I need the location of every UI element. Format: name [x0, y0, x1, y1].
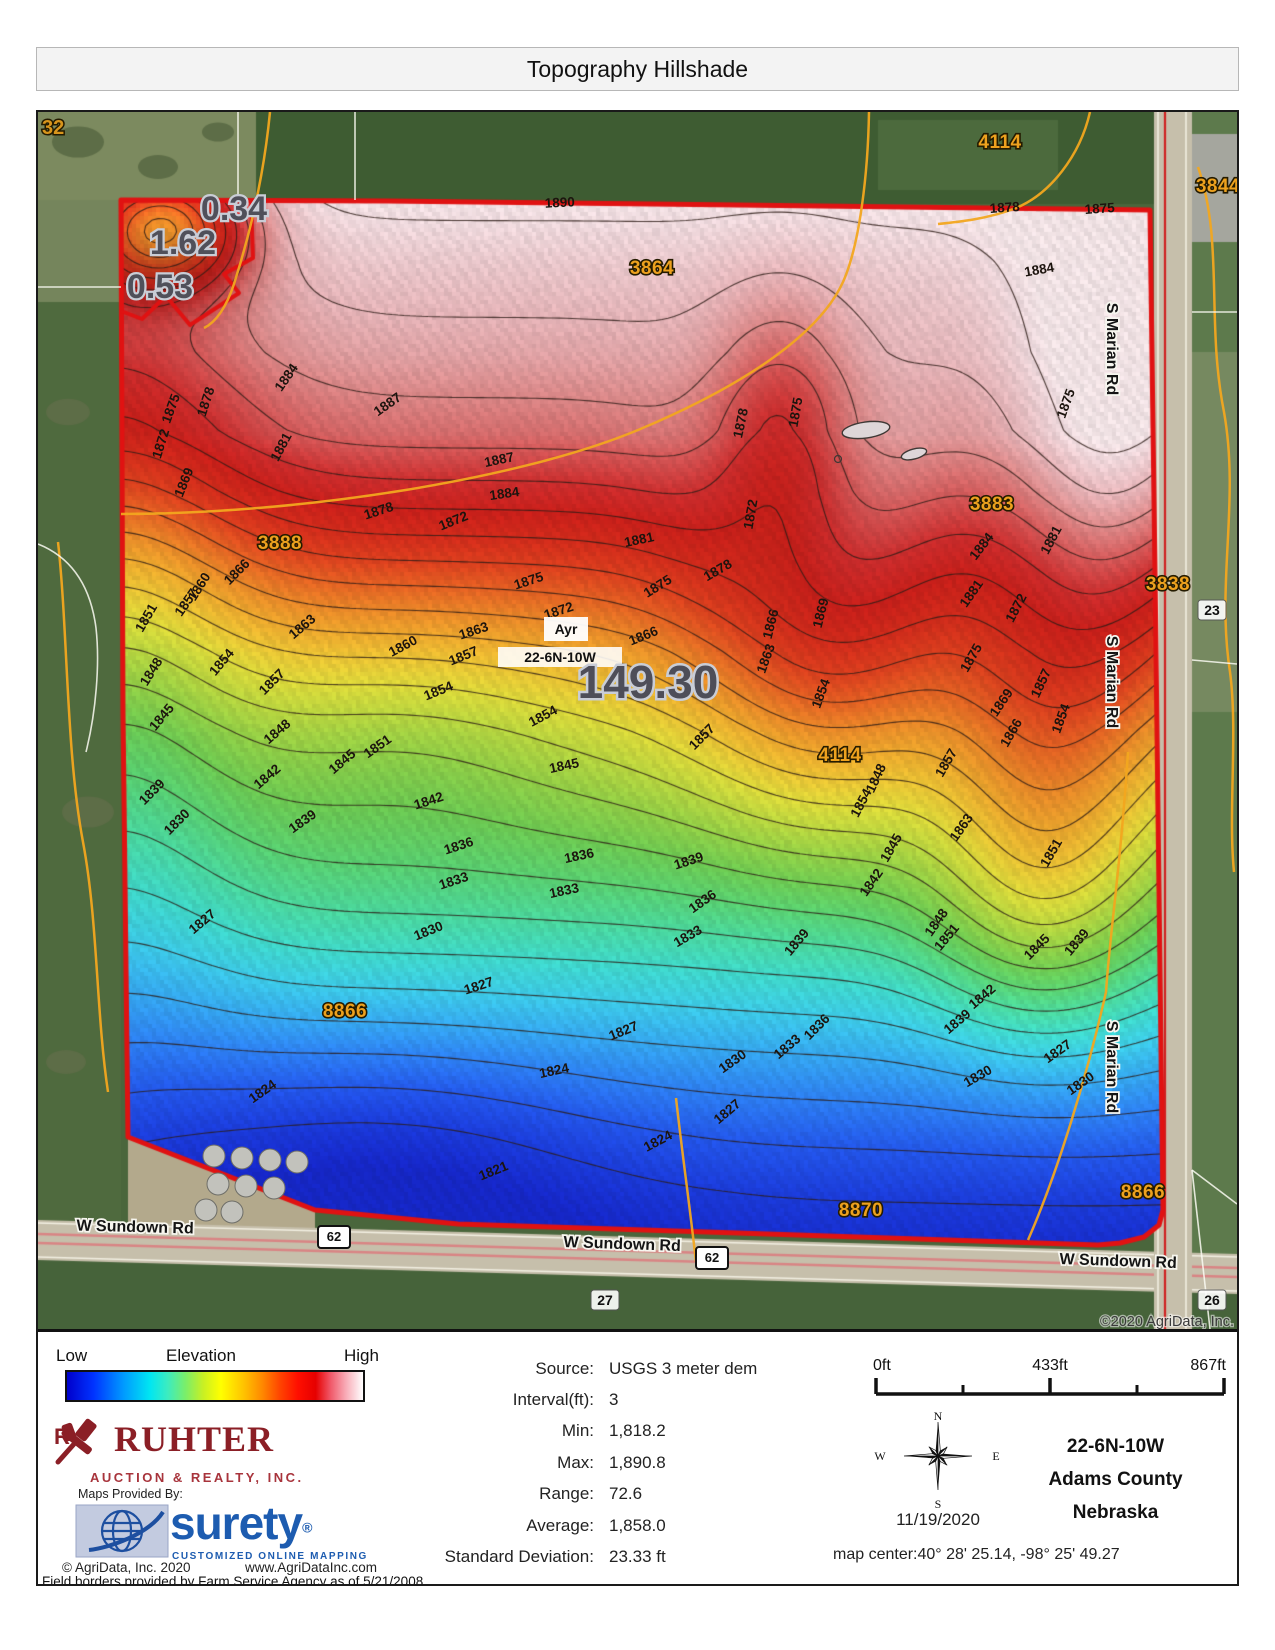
road-label: W Sundown Rd	[1059, 1251, 1177, 1272]
contour-label: 1824	[246, 1076, 280, 1106]
field-borders-note: Field borders provided by Farm Service A…	[42, 1574, 427, 1584]
contour-label: 1839	[286, 807, 319, 837]
contour-label: 1836	[801, 1011, 833, 1043]
contour-label: 1854	[526, 702, 560, 730]
surety-logo-text: surety®	[170, 1500, 312, 1546]
scale-bar: 0ft 433ft 867ft	[833, 1348, 1237, 1400]
acreage-label: 0.53	[127, 268, 193, 306]
grain-bin	[286, 1151, 308, 1173]
location-trs: 22-6N-10W	[1023, 1436, 1208, 1458]
contour-label: 1869	[987, 686, 1016, 719]
stat-row: Source:USGS 3 meter dem	[338, 1353, 808, 1384]
stat-row: Range:72.6	[338, 1479, 808, 1510]
contour-label: 1881	[957, 576, 987, 610]
contour-label: 1857	[256, 666, 288, 698]
report-box: 1890188718871884188418841884188118811881…	[36, 110, 1239, 1586]
contour-label: 1854	[422, 678, 456, 703]
contour-label: 1863	[754, 641, 779, 675]
contour-label: 1872	[741, 498, 761, 530]
grain-bin	[195, 1199, 217, 1221]
parcel-label: 8866	[1121, 1182, 1165, 1203]
road-label: W Sundown Rd	[563, 1234, 681, 1255]
contour-label: 1830	[716, 1047, 749, 1077]
stat-value: 1,818.2	[609, 1421, 666, 1441]
legend-title: Elevation	[166, 1346, 236, 1366]
surety-globe-icon	[75, 1504, 169, 1558]
topo-map: 1890188718871884188418841884188118811881…	[38, 112, 1237, 1332]
parcel-label: 3838	[1146, 574, 1190, 595]
svg-text:R: R	[54, 1424, 70, 1449]
stat-value: USGS 3 meter dem	[609, 1359, 757, 1379]
grain-bin	[231, 1147, 253, 1169]
contour-label: 1875	[957, 641, 985, 675]
contour-label: 1854	[809, 676, 834, 710]
contour-label: 1830	[961, 1062, 995, 1090]
contour-label: 1881	[267, 430, 295, 464]
contour-label: 1863	[286, 611, 319, 642]
field-border-line	[38, 544, 98, 752]
contour-label: 1845	[146, 700, 177, 733]
section-number: 27	[597, 1292, 613, 1308]
contour-label: 1866	[221, 556, 253, 588]
contour-label: 1821	[477, 1158, 511, 1183]
stat-value: 1,858.0	[609, 1516, 666, 1536]
contour-label: 1872	[149, 427, 172, 460]
contour-label: 1833	[671, 922, 705, 950]
contour-label: 1869	[171, 466, 196, 499]
contour-label: 1839	[781, 926, 812, 959]
grain-bin	[235, 1175, 257, 1197]
pond	[835, 456, 842, 463]
report-footer: Low Elevation High R RUHTER AUCTION & RE…	[38, 1332, 1237, 1584]
contour-label: 1878	[701, 556, 735, 584]
road-label: S Marian Rd	[1103, 636, 1120, 728]
contour-label: 1851	[1037, 836, 1065, 870]
ruhter-gavel-icon: R	[52, 1418, 114, 1468]
contour-label: 1881	[623, 529, 656, 550]
contour-label: 1890	[544, 194, 575, 211]
contour-label: 1866	[760, 607, 782, 640]
map-date: 11/19/2020	[866, 1510, 1010, 1530]
contour-label: 1851	[361, 731, 395, 761]
survey-line	[1198, 167, 1234, 872]
contour-label: 1884	[966, 529, 997, 562]
contour-label: 1839	[672, 849, 705, 873]
grain-bin	[263, 1177, 285, 1199]
page-title-text: Topography Hillshade	[527, 56, 748, 83]
contour-label: 1842	[251, 761, 284, 792]
parcel-label: 8870	[839, 1200, 883, 1221]
contour-label: 1842	[966, 981, 999, 1012]
stat-row: Standard Deviation:23.33 ft	[338, 1541, 808, 1572]
contour-label: 1866	[627, 623, 661, 648]
survey-line	[1028, 752, 1128, 1240]
stat-value: 1,890.8	[609, 1453, 666, 1473]
contour-label: 1845	[326, 746, 359, 777]
scale-tick-1: 433ft	[1032, 1357, 1068, 1374]
scale-bar-line	[876, 1378, 1224, 1394]
page-title: Topography Hillshade	[36, 47, 1239, 91]
elevation-gradient-bar	[65, 1370, 365, 1402]
stat-label: Range:	[338, 1484, 594, 1504]
acreage-label: 1.62	[150, 224, 216, 262]
survey-line	[58, 542, 108, 1092]
contour-label: 1848	[863, 761, 889, 795]
stat-label: Interval(ft):	[338, 1390, 594, 1410]
compass-rose: N E S W	[866, 1408, 1010, 1520]
contour-label: 1854	[1049, 701, 1074, 735]
stat-row: Interval(ft):3	[338, 1384, 808, 1415]
contour-label: 1857	[932, 746, 960, 780]
ruhter-subtitle: AUCTION & REALTY, INC.	[90, 1470, 304, 1485]
contour-label: 1827	[1041, 1037, 1074, 1067]
elevation-stats: Source:USGS 3 meter demInterval(ft):3Min…	[338, 1353, 808, 1573]
grain-bin	[203, 1145, 225, 1167]
contour-label: 1887	[371, 390, 404, 420]
contour-label: 1875	[641, 572, 675, 601]
contour-label: 1848	[137, 654, 166, 688]
contour-label: 1830	[412, 918, 445, 943]
acreage-label: 149.30	[578, 656, 719, 708]
contour-label: 1875	[786, 396, 806, 429]
stat-label: Average:	[338, 1516, 594, 1536]
stat-value: 23.33 ft	[609, 1547, 666, 1567]
contour-label: 1857	[1028, 666, 1054, 700]
grain-bin	[207, 1173, 229, 1195]
grain-bin	[259, 1149, 281, 1171]
contour-label: 1872	[1002, 591, 1029, 625]
acreage-label: 0.34	[201, 190, 267, 228]
contour-label: 1845	[548, 755, 581, 776]
contour-label: 1827	[711, 1096, 744, 1127]
contour-label: 1845	[877, 831, 905, 865]
contour-label: 1857	[447, 643, 480, 668]
contour-label: 1830	[161, 806, 193, 838]
parcel-label: 3883	[970, 494, 1014, 515]
compass-e: E	[992, 1449, 999, 1463]
contour-label: 1875	[1054, 386, 1079, 420]
location-state: Nebraska	[1023, 1502, 1208, 1524]
contour-label: 1827	[186, 906, 219, 937]
legend-low-label: Low	[56, 1346, 87, 1366]
road-label: W Sundown Rd	[76, 1217, 194, 1237]
route-number: 62	[327, 1229, 341, 1244]
ruhter-logo-text: RUHTER	[114, 1418, 274, 1460]
contour-label: 1854	[206, 645, 237, 678]
location-county: Adams County	[1023, 1469, 1208, 1491]
contour-label: 1839	[1061, 926, 1092, 959]
stat-row: Max:1,890.8	[338, 1447, 808, 1478]
contour-label: 1884	[488, 484, 520, 503]
contour-label: 1842	[412, 789, 445, 813]
contour-label: 1878	[362, 499, 396, 523]
stat-label: Standard Deviation:	[338, 1547, 594, 1567]
stat-row: Average:1,858.0	[338, 1510, 808, 1541]
grain-bin	[221, 1201, 243, 1223]
compass-s: S	[935, 1497, 942, 1511]
section-number: 26	[1204, 1292, 1220, 1308]
contour-label: 1836	[442, 834, 476, 858]
agridata-copyright: © AgriData, Inc. 2020	[62, 1560, 191, 1575]
contour-label: 1875	[1084, 200, 1115, 217]
field-border-line	[1192, 1170, 1237, 1204]
contour-label: 1833	[548, 880, 581, 901]
contour-label: 1842	[857, 866, 887, 899]
contour-label: 1848	[261, 716, 294, 747]
contour-label: 1884	[1023, 259, 1056, 279]
stat-value: 3	[609, 1390, 618, 1410]
parcel-label: 4114	[818, 745, 861, 766]
contour-label: 1884	[272, 360, 302, 394]
contour-label: 1845	[1021, 931, 1053, 963]
contour-label: 1839	[941, 1006, 974, 1037]
pond	[841, 419, 891, 442]
contour-label: 1875	[159, 391, 184, 425]
compass-w: W	[874, 1449, 886, 1463]
road-label: S Marian Rd	[1103, 303, 1120, 395]
compass-n: N	[934, 1409, 943, 1423]
contour-label: 1860	[386, 632, 420, 659]
parcel-label: 3864	[630, 258, 674, 279]
contour-label: 1863	[457, 619, 491, 643]
contour-label: 1878	[989, 199, 1020, 216]
scale-tick-0: 0ft	[873, 1357, 891, 1374]
contour-label: 1824	[641, 1127, 675, 1155]
stat-label: Min:	[338, 1421, 594, 1441]
contour-label: 1851	[132, 601, 160, 635]
stat-value: 72.6	[609, 1484, 642, 1504]
map-copyright: ©2020 AgriData, Inc.	[1100, 1314, 1234, 1329]
town-label: Ayr	[555, 621, 578, 637]
field-border-line	[1192, 660, 1237, 664]
map-overlay: 1890188718871884188418841884188118811881…	[38, 112, 1237, 1329]
stat-label: Source:	[338, 1359, 594, 1379]
contour-label: 1857	[686, 721, 718, 753]
section-label: 32	[42, 117, 64, 139]
parcel-label: 3844	[1196, 176, 1237, 197]
contour-label: 1827	[607, 1018, 640, 1043]
parcel-label: 4114	[978, 132, 1021, 153]
parcel-label: 8866	[323, 1001, 367, 1022]
contour-label: 1839	[136, 776, 168, 808]
contour-label: 1872	[437, 508, 470, 533]
stat-label: Max:	[338, 1453, 594, 1473]
contour-label: 1833	[771, 1031, 804, 1062]
stat-row: Min:1,818.2	[338, 1416, 808, 1447]
contour-label: 1878	[194, 385, 218, 419]
road-label: S Marian Rd	[1103, 1021, 1120, 1113]
map-center-coords: map center:40° 28' 25.14, -98° 25' 49.27	[833, 1546, 1237, 1564]
contour-label: 1866	[997, 716, 1025, 750]
contour-label: 1875	[512, 569, 546, 593]
contour-label: 1824	[538, 1060, 571, 1081]
contour-label: 1863	[947, 810, 977, 844]
section-number: 23	[1204, 602, 1220, 618]
contour-label: 1869	[810, 597, 832, 630]
contour-label: 1836	[686, 886, 720, 916]
contour-label: 1833	[437, 869, 471, 893]
pond	[900, 446, 928, 462]
maps-provided-by: Maps Provided By:	[78, 1487, 183, 1501]
contour-label: 1878	[730, 406, 751, 439]
contour-label: 1881	[1037, 523, 1065, 557]
route-number: 62	[705, 1250, 719, 1265]
parcel-label: 3888	[258, 533, 302, 554]
contour-label: 1827	[462, 974, 495, 998]
contour-label: 1887	[483, 449, 516, 470]
scale-tick-2: 867ft	[1190, 1357, 1226, 1374]
contour-label: 1836	[563, 845, 596, 866]
